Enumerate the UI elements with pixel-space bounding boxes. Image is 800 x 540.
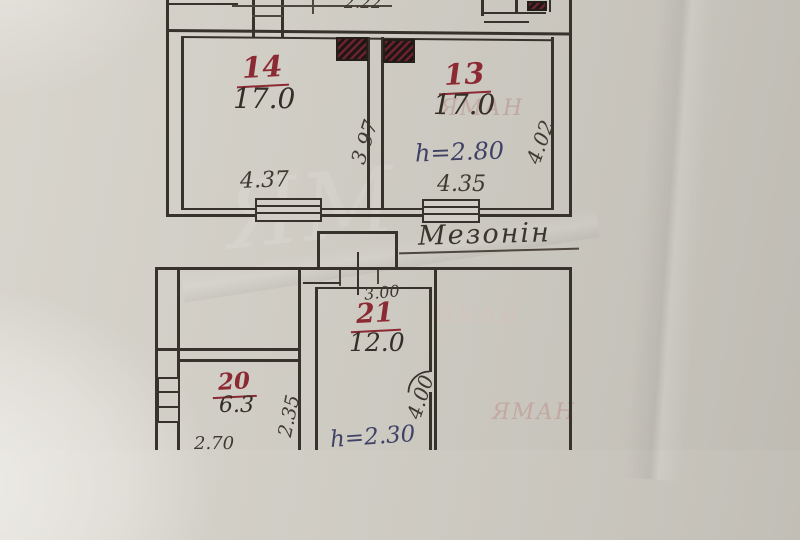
chimney-stack-wall xyxy=(252,15,283,17)
room-20-area: 6.3 xyxy=(219,393,254,418)
wall-fragment xyxy=(549,0,551,12)
interior-wall-bottom-tl-room xyxy=(155,348,301,351)
mezzanine-outer-wall-left xyxy=(166,29,169,217)
mezzanine-outer-wall-bottom xyxy=(166,214,572,217)
room-number: 20 xyxy=(211,367,256,396)
paper-highlight-bottom-left xyxy=(0,280,220,540)
plan-title: Мезонін xyxy=(418,217,552,251)
floor-plan-photo: ЯМ ЯМАН ЯМАН ЯМАН 2.22 14 17.0 4.37 3.97… xyxy=(0,0,800,450)
paper-crease-right xyxy=(623,0,718,481)
mezzanine-outer-wall-top xyxy=(166,29,572,35)
room-21-area: 12.0 xyxy=(349,328,405,357)
wall-fragment xyxy=(481,12,546,14)
room-14-area: 17.0 xyxy=(233,82,295,115)
watermark-text: ЯМАН xyxy=(492,400,576,425)
ground-outer-wall-right xyxy=(569,267,572,450)
room-21-left-wall xyxy=(315,287,318,450)
watermark-text: ЯМАН xyxy=(436,304,520,329)
room-13-area: 17.0 xyxy=(433,88,495,121)
ceiling-height-note: h=2.80 xyxy=(415,136,505,167)
window-pane-line xyxy=(424,213,478,215)
right-room-left-wall xyxy=(434,267,437,450)
window-pane-line xyxy=(257,212,320,214)
dimension-label-top: 2.22 xyxy=(344,0,382,13)
wall-fragment xyxy=(484,21,529,23)
room-20-width-dim: 2.70 xyxy=(194,433,234,454)
mezzanine-outer-wall-right xyxy=(569,0,572,217)
wall xyxy=(317,231,320,269)
window-pane-line xyxy=(257,205,320,207)
ground-inner-wall-left xyxy=(177,423,180,450)
window xyxy=(255,198,322,222)
wall xyxy=(395,231,398,269)
window-pane-line xyxy=(159,406,178,408)
window-pane-line xyxy=(159,391,178,393)
interior-wall xyxy=(303,282,341,284)
ground-outer-wall-top xyxy=(155,267,572,270)
chimney-flue-hatch xyxy=(336,37,368,61)
wall-fragment xyxy=(168,3,238,5)
window xyxy=(157,377,180,423)
room-13-width-dim: 4.35 xyxy=(437,172,486,197)
dimension-tick xyxy=(312,0,314,14)
ceiling-height-note: h=2.30 xyxy=(329,421,416,453)
room-14-width-dim: 4.37 xyxy=(240,167,290,194)
wall xyxy=(317,231,397,234)
room-20-top-wall xyxy=(177,359,301,362)
room-21-right-wall xyxy=(429,287,432,372)
room-number: 13 xyxy=(437,56,491,93)
room-number: 21 xyxy=(349,297,400,331)
chimney-flue-hatch xyxy=(527,1,547,11)
paper-highlight-top-left xyxy=(0,0,180,100)
dimension-tick xyxy=(377,268,379,284)
mezzanine-inner-wall-left xyxy=(181,37,184,210)
chimney-flue-hatch xyxy=(383,39,415,63)
window-pane-line xyxy=(424,206,478,208)
room-number: 14 xyxy=(235,49,289,86)
